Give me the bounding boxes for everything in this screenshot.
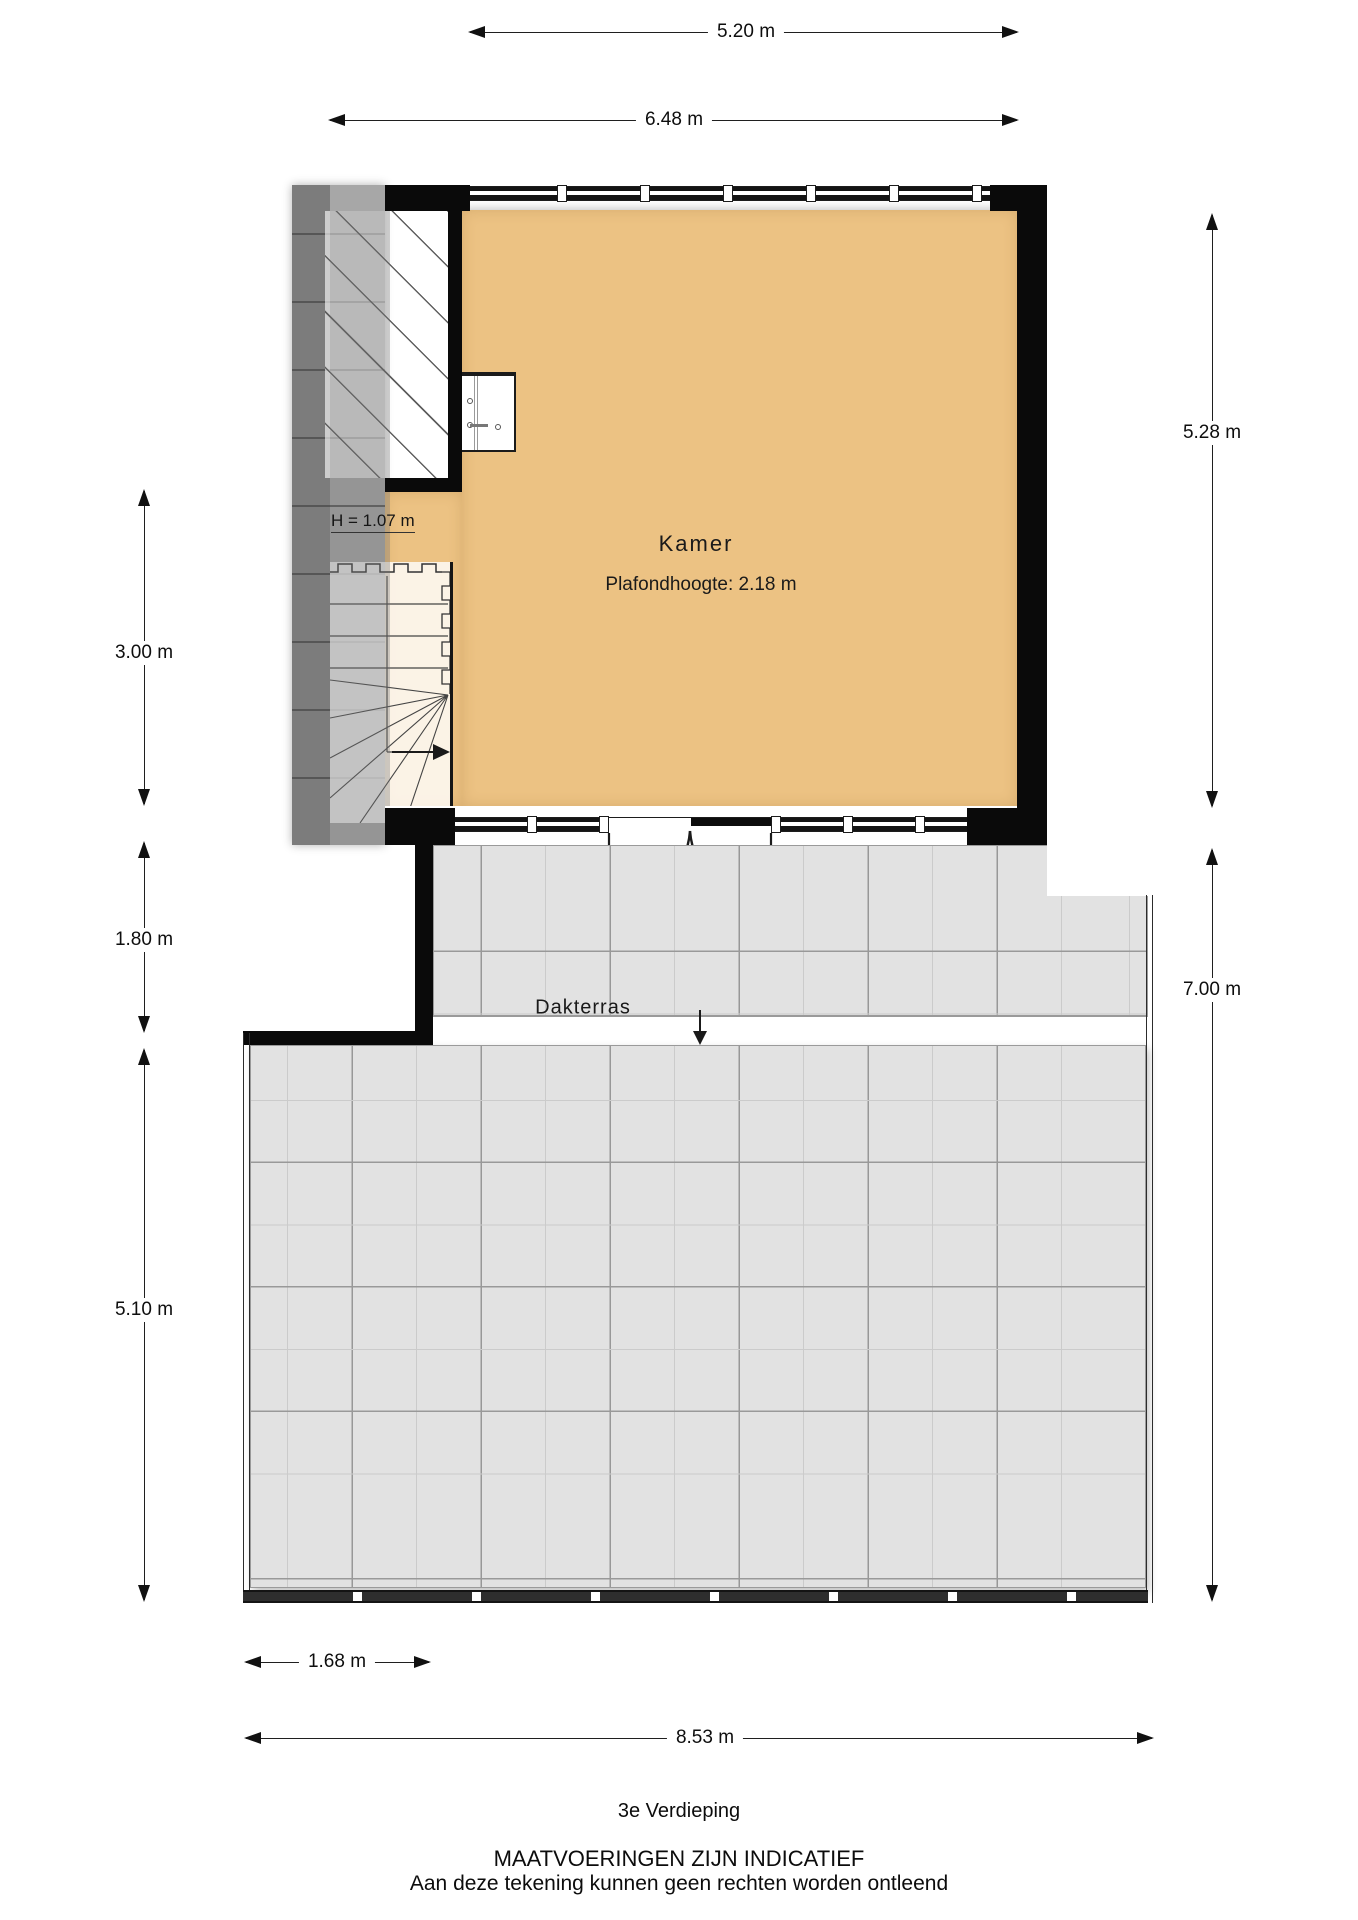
- railing-left: [243, 1033, 250, 1603]
- knob-icon: [495, 424, 501, 430]
- arrow-down-icon: [138, 789, 150, 806]
- arrow-right-icon: [1002, 114, 1019, 126]
- dimension-label: 3.00 m: [106, 641, 182, 665]
- window-mullion: [723, 185, 733, 202]
- dimension-5-20: 5.20 m: [470, 32, 1017, 33]
- step-down-arrow-icon: [692, 1010, 708, 1046]
- window-band-north: [470, 186, 990, 201]
- window-mullion: [889, 185, 899, 202]
- dimension-8-53: 8.53 m: [246, 1738, 1152, 1739]
- room-label-kamer: Kamer: [659, 531, 734, 557]
- dakterras-lower-tiles: [250, 1045, 1146, 1588]
- arrow-up-icon: [1206, 213, 1218, 230]
- arrow-right-icon: [1137, 1732, 1154, 1744]
- handle-icon: [470, 424, 488, 427]
- room-label-dakterras: Dakterras: [535, 997, 631, 1020]
- arrow-left-icon: [244, 1732, 261, 1744]
- dimension-label: 1.68 m: [299, 1650, 375, 1674]
- arrow-left-icon: [468, 26, 485, 38]
- kamer-floor: [462, 210, 1017, 806]
- dimension-label: 1.80 m: [106, 928, 182, 952]
- wall-void-bottom: [385, 478, 462, 492]
- arrow-up-icon: [138, 1048, 150, 1065]
- wall-bottom-right-step: [967, 808, 1047, 845]
- dimension-label: 5.20 m: [708, 20, 784, 44]
- dakterras-upper-tiles: [433, 845, 1148, 1016]
- knob-icon: [467, 398, 473, 404]
- wall-top-left: [385, 185, 470, 211]
- dimension-1-68: 1.68 m: [246, 1662, 429, 1663]
- dimension-5-10: 5.10 m: [144, 1050, 145, 1600]
- railing-bottom: [243, 1590, 1148, 1603]
- arrow-right-icon: [414, 1656, 431, 1668]
- railing-right: [1146, 895, 1153, 1603]
- dimension-7-00: 7.00 m: [1212, 850, 1213, 1600]
- window-mullion: [915, 816, 925, 833]
- window-mullion: [527, 816, 537, 833]
- disclaimer-line1: MAATVOERINGEN ZIJN INDICATIEF: [0, 1846, 1358, 1872]
- cabinet-divider: [474, 376, 478, 450]
- disclaimer-line2: Aan deze tekening kunnen geen rechten wo…: [0, 1872, 1358, 1896]
- dimension-6-48: 6.48 m: [330, 120, 1017, 121]
- dimension-label: 5.10 m: [106, 1298, 182, 1322]
- dimension-label: 6.48 m: [636, 108, 712, 132]
- window-mullion: [806, 185, 816, 202]
- dimension-label: 8.53 m: [667, 1726, 743, 1750]
- dimension-3-00: 3.00 m: [144, 491, 145, 804]
- arrow-down-icon: [138, 1585, 150, 1602]
- dimension-1-80: 1.80 m: [144, 843, 145, 1031]
- arrow-down-icon: [138, 1016, 150, 1033]
- window-mullion: [640, 185, 650, 202]
- low-height-note: H = 1.07 m: [331, 511, 415, 533]
- window-mullion: [972, 185, 982, 202]
- wall-void-right: [448, 211, 462, 492]
- wall-terrace-left: [415, 845, 433, 1045]
- floorplan-canvas: Kamer Plafondhoogte: 2.18 m Dakterras H …: [0, 0, 1358, 1920]
- wall-lower-terrace-top: [243, 1031, 433, 1045]
- dimension-5-28: 5.28 m: [1212, 215, 1213, 806]
- wall-bottom-left-block: [385, 808, 455, 845]
- terrace-notch-mask: [1047, 845, 1148, 896]
- arrow-down-icon: [1206, 1585, 1218, 1602]
- arrow-up-icon: [1206, 848, 1218, 865]
- arrow-up-icon: [138, 841, 150, 858]
- arrow-left-icon: [328, 114, 345, 126]
- window-mullion: [557, 185, 567, 202]
- floor-title: 3e Verdieping: [0, 1800, 1358, 1823]
- dimension-label: 7.00 m: [1174, 978, 1250, 1002]
- arrow-down-icon: [1206, 791, 1218, 808]
- arrow-up-icon: [138, 489, 150, 506]
- window-mullion: [843, 816, 853, 833]
- wall-top-right-corner: [990, 185, 1047, 211]
- dimension-label: 5.28 m: [1174, 421, 1250, 445]
- terrace-step: [433, 1016, 1148, 1046]
- arrow-right-icon: [1002, 26, 1019, 38]
- wall-right: [1017, 210, 1047, 910]
- cabinet-fixture: [460, 372, 516, 452]
- ceiling-height-label: Plafondhoogte: 2.18 m: [605, 574, 796, 596]
- arrow-left-icon: [244, 1656, 261, 1668]
